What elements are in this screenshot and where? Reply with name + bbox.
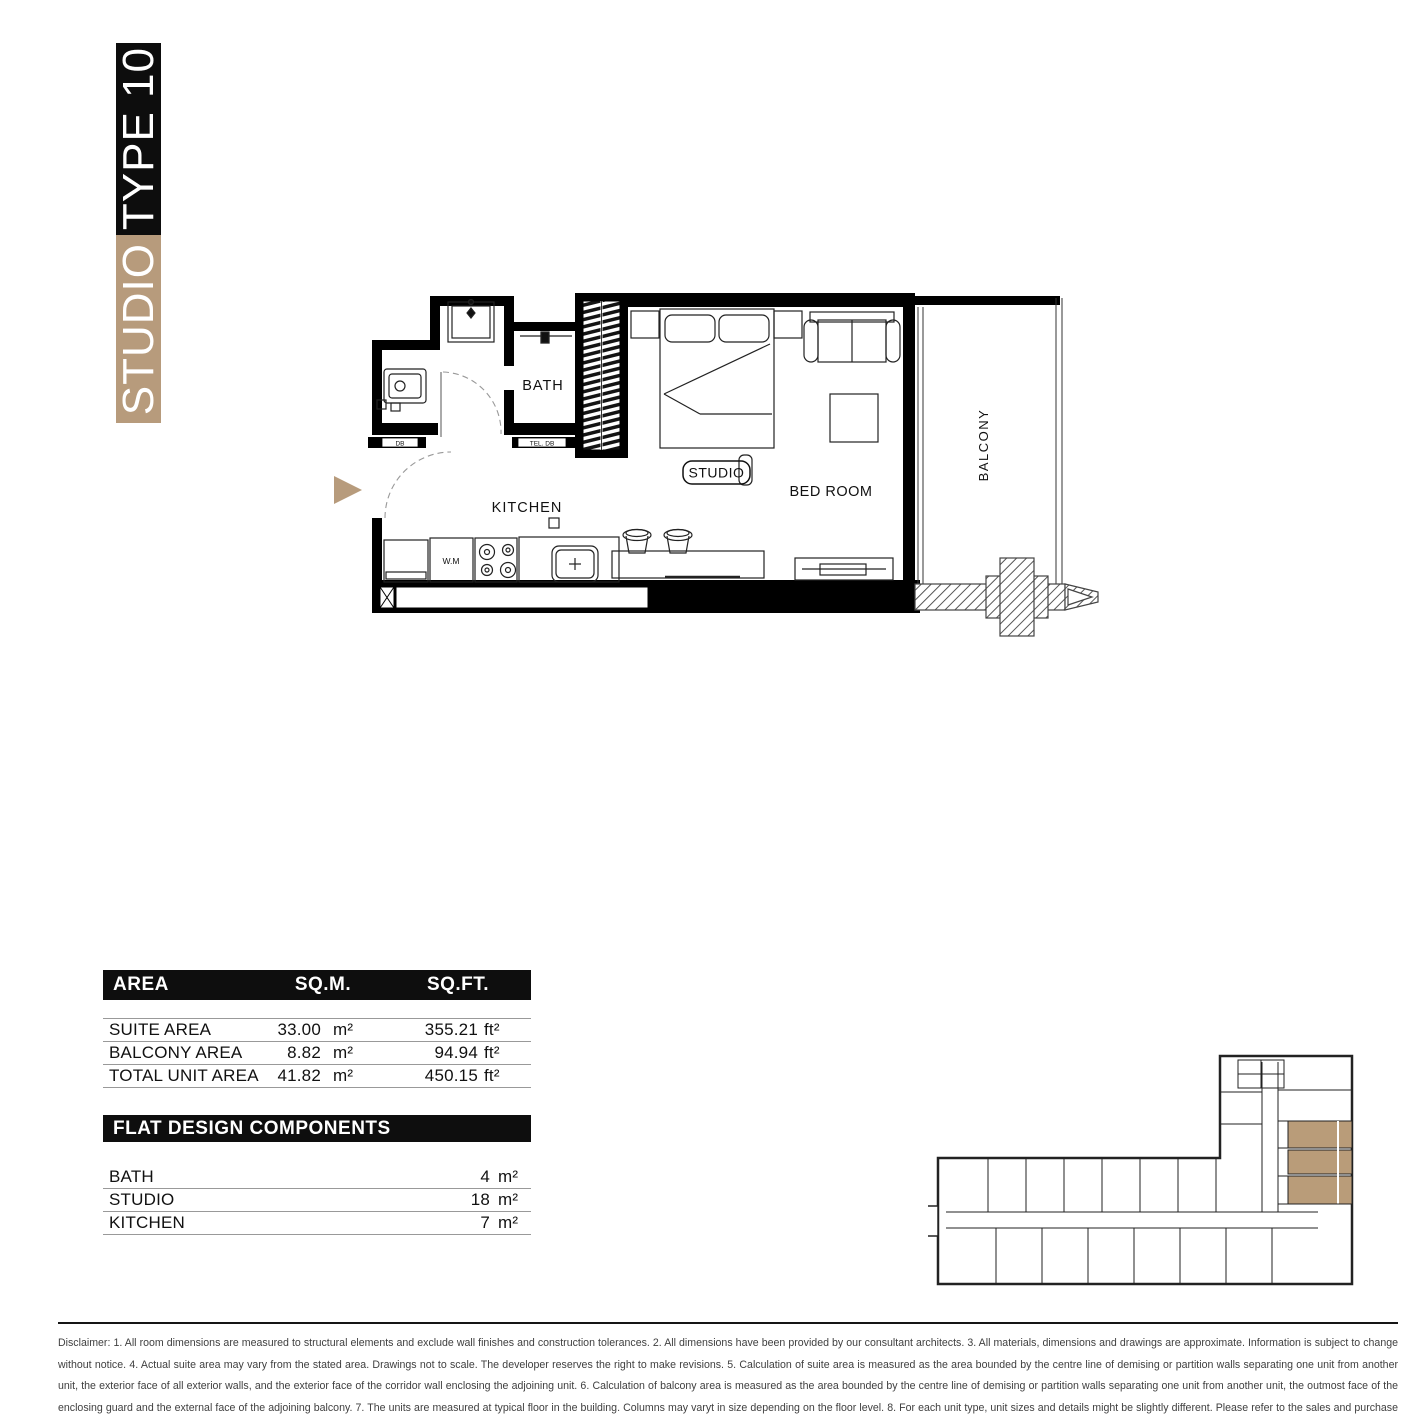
row-sqm: 8.82: [259, 1043, 321, 1063]
row-unit: m²: [490, 1213, 531, 1233]
shower: [520, 332, 572, 343]
disclaimer-text: Disclaimer: 1. All room dimensions are m…: [58, 1337, 1398, 1414]
row-sqm: 41.82: [259, 1066, 321, 1086]
row-value: 7: [430, 1213, 490, 1233]
table-row: SUITE AREA 33.00 m² 355.21 ft²: [103, 1019, 531, 1042]
row-sqft-unit: ft²: [478, 1066, 537, 1086]
table-row: KITCHEN 7 m²: [103, 1212, 531, 1235]
table-row: BALCONY AREA 8.82 m² 94.94 ft²: [103, 1042, 531, 1065]
row-label: BATH: [103, 1167, 430, 1187]
row-label: BALCONY AREA: [103, 1043, 259, 1063]
components-title: FLAT DESIGN COMPONENTS: [103, 1118, 391, 1140]
room-label-bath: BATH: [522, 378, 564, 394]
components-table-rows: BATH 4 m² STUDIO 18 m² KITCHEN 7 m²: [103, 1166, 531, 1235]
table-row: TOTAL UNIT AREA 41.82 m² 450.15 ft²: [103, 1065, 531, 1088]
banner-type-segment: TYPE 10: [116, 43, 161, 235]
row-sqm: 33.00: [259, 1020, 321, 1040]
row-unit: m²: [490, 1167, 531, 1187]
area-table-header: AREA SQ.M. SQ.FT.: [103, 970, 531, 1000]
window-band: [380, 587, 648, 608]
banner-studio-label: STUDIO: [114, 243, 164, 415]
area-header-cell: AREA: [103, 974, 263, 996]
room-label-kitchen: KITCHEN: [492, 500, 563, 516]
row-sqm-unit: m²: [321, 1020, 378, 1040]
label-tel-db: TEL. DB: [530, 441, 555, 448]
closet-sink: [448, 300, 494, 343]
area-table-rows: SUITE AREA 33.00 m² 355.21 ft² BALCONY A…: [103, 1018, 531, 1088]
flat-design-components-table: FLAT DESIGN COMPONENTS BATH 4 m² STUDIO …: [103, 1115, 531, 1235]
row-label: STUDIO: [103, 1190, 430, 1210]
sofa: [804, 312, 900, 362]
row-unit: m²: [490, 1190, 531, 1210]
banner-studio-segment: STUDIO: [116, 235, 161, 423]
sqft-header-cell: SQ.FT.: [383, 974, 533, 996]
bed: [631, 309, 802, 448]
row-sqm-unit: m²: [321, 1066, 378, 1086]
area-table: AREA SQ.M. SQ.FT. SUITE AREA 33.00 m² 35…: [103, 970, 531, 1088]
bar-stools: [623, 530, 740, 578]
kitchen-counter: [384, 518, 764, 582]
label-wm: W.M: [443, 556, 460, 566]
disclaimer: Disclaimer: 1. All room dimensions are m…: [58, 1322, 1398, 1414]
table-row: STUDIO 18 m²: [103, 1189, 531, 1212]
room-label-studio: STUDIO: [689, 465, 745, 481]
row-sqft-unit: ft²: [478, 1020, 537, 1040]
row-sqft-unit: ft²: [478, 1043, 537, 1063]
components-table-header: FLAT DESIGN COMPONENTS: [103, 1115, 531, 1142]
key-plan: [928, 1048, 1368, 1298]
entry-arrow-icon: [334, 476, 362, 504]
row-label: KITCHEN: [103, 1213, 430, 1233]
entry-sink: [377, 369, 426, 411]
table-row: BATH 4 m²: [103, 1166, 531, 1189]
row-label: SUITE AREA: [103, 1020, 259, 1040]
walls: [368, 293, 1060, 613]
banner-type-label: TYPE 10: [114, 47, 164, 230]
brochure-page: TYPE 10 STUDIO: [0, 0, 1406, 1414]
label-db: DB: [395, 441, 404, 448]
highlighted-unit: [1288, 1121, 1352, 1204]
row-value: 4: [430, 1167, 490, 1187]
sqm-header-cell: SQ.M.: [263, 974, 383, 996]
row-value: 18: [430, 1190, 490, 1210]
room-label-bedroom: BED ROOM: [790, 484, 873, 500]
row-sqft: 94.94: [378, 1043, 478, 1063]
row-sqft: 450.15: [378, 1066, 478, 1086]
room-label-balcony: BALCONY: [976, 409, 991, 482]
unit-type-banner: TYPE 10 STUDIO: [116, 43, 161, 423]
structural-column: [915, 558, 1098, 636]
floor-plan: BATH KITCHEN STUDIO BED ROOM BALCONY DB …: [330, 268, 1120, 648]
row-sqm-unit: m²: [321, 1043, 378, 1063]
row-sqft: 355.21: [378, 1020, 478, 1040]
coffee-table: [830, 394, 878, 442]
tv-cabinet: [795, 558, 893, 580]
row-label: TOTAL UNIT AREA: [103, 1066, 259, 1086]
wardrobe: [583, 301, 620, 450]
